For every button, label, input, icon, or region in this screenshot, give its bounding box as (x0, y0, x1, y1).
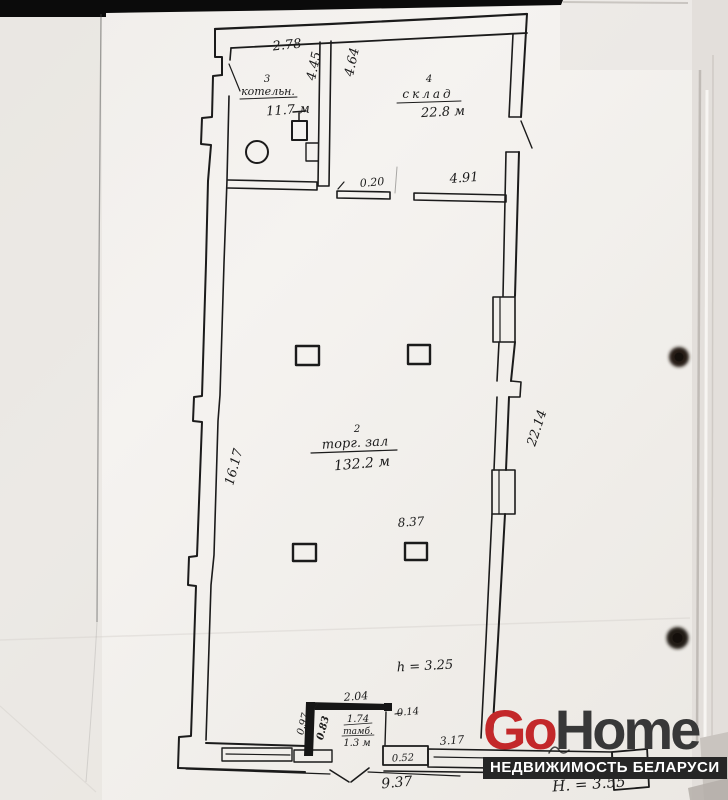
floor-plan-drawing: 2.78 4.45 4.64 3 котельн. 11.7 м 4 склад… (0, 0, 728, 800)
room-number-warehouse: 4 (425, 74, 432, 85)
room-name-boiler: котельн. (241, 85, 295, 98)
scanned-floor-plan: 2.78 4.45 4.64 3 котельн. 11.7 м 4 склад… (0, 0, 728, 800)
dim-sill-small: 0.20 (359, 175, 385, 190)
logo-go: Go (483, 698, 555, 761)
paper-background (0, 0, 728, 800)
room-name-warehouse: склад (402, 87, 453, 101)
dim-vestibule-outer: 2.04 (342, 689, 368, 704)
dim-bottom-total: 9.37 (381, 774, 414, 793)
dim-hall-width: 8.37 (397, 514, 425, 530)
room-number-boiler: 3 (264, 74, 270, 85)
room-area-vestibule: 1.3 м (343, 738, 370, 749)
room-area-warehouse: 22.8 м (420, 104, 466, 121)
paper-right-edge (688, 0, 728, 800)
room-area-boiler: 11.7 м (266, 101, 311, 119)
logo-tagline-bar: НЕДВИЖИМОСТЬ БЕЛАРУСИ (483, 757, 727, 779)
dim-sill-large: 4.91 (448, 170, 479, 187)
dim-vestibule-stub: 0.14 (396, 706, 419, 719)
gohome-wordmark: GoHome (483, 703, 727, 756)
logo-home: Home (555, 698, 699, 761)
note-ceiling-height: h = 3.25 (396, 658, 453, 676)
gohome-logo: GoHome НЕДВИЖИМОСТЬ БЕЛАРУСИ (483, 703, 727, 779)
room-number-hall: 2 (353, 424, 360, 435)
dim-porch-step: 0.52 (392, 752, 415, 764)
scan-top-edge-faint (563, 2, 688, 3)
dim-bottom-right: 3.17 (439, 733, 464, 748)
dim-boiler-width: 2.78 (271, 37, 302, 55)
